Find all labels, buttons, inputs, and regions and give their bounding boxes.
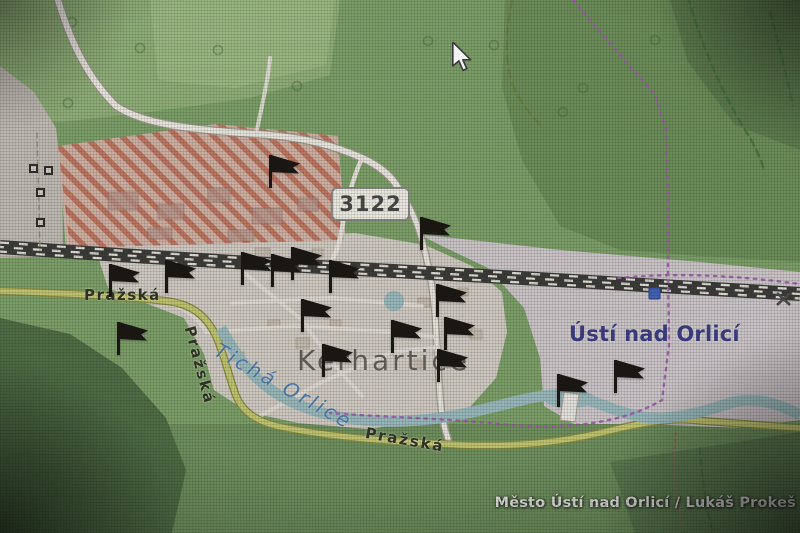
- map-canvas[interactable]: Pražská Pražská Pražská Tichá Orlice Ker…: [0, 0, 800, 533]
- screen: Pražská Pražská Pražská Tichá Orlice Ker…: [0, 0, 800, 533]
- flag-marker[interactable]: [437, 348, 471, 382]
- flag-marker[interactable]: [241, 251, 275, 285]
- road-number-badge: 3122: [331, 187, 410, 221]
- flag-marker[interactable]: [165, 259, 199, 293]
- pond: [384, 291, 404, 311]
- flag-marker[interactable]: [269, 154, 303, 188]
- flag-marker[interactable]: [301, 298, 335, 332]
- town-label: Ústí nad Orlicí: [569, 322, 740, 346]
- flag-marker[interactable]: [436, 283, 470, 317]
- flag-marker[interactable]: [329, 259, 363, 293]
- flag-marker[interactable]: [322, 343, 356, 377]
- flag-marker[interactable]: [291, 246, 325, 280]
- credit-text: Město Ústí nad Orlicí / Lukáš Prokeš: [495, 495, 796, 511]
- flag-marker[interactable]: [614, 359, 648, 393]
- flag-marker[interactable]: [444, 316, 478, 350]
- flag-marker[interactable]: [391, 319, 425, 353]
- flag-marker[interactable]: [109, 263, 143, 297]
- flag-marker[interactable]: [117, 321, 151, 355]
- flag-marker[interactable]: [557, 373, 591, 407]
- flag-marker[interactable]: [420, 216, 454, 250]
- station-icon: [649, 288, 660, 299]
